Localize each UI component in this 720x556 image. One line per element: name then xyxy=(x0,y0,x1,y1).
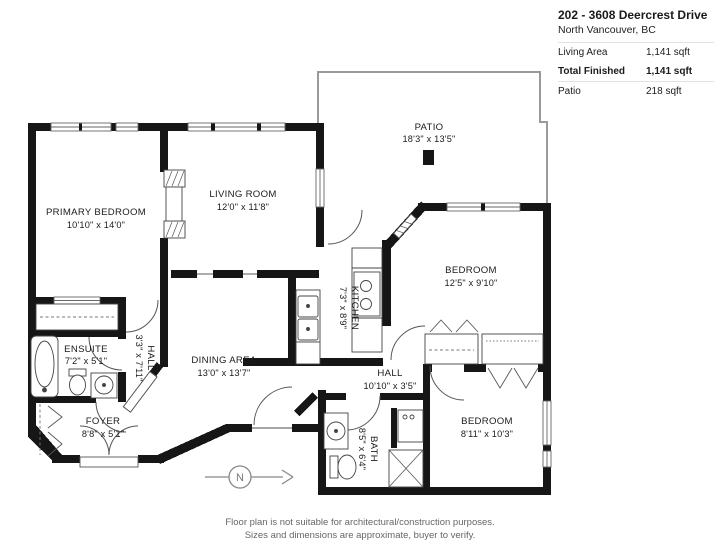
room-dims-hall-main: 10'10" x 3'5" xyxy=(364,381,417,391)
openings xyxy=(197,274,292,428)
stove-burner xyxy=(361,281,372,292)
patio-column xyxy=(423,150,434,165)
compass-north-label: N xyxy=(236,472,244,484)
dining-door-arc xyxy=(254,387,292,425)
disclaimer-line-1: Floor plan is not suitable for architect… xyxy=(0,516,720,529)
room-dims-bedroom-bottom: 8'11" x 10'3" xyxy=(461,429,513,439)
room-label-hall-small: HALL xyxy=(145,345,156,371)
stat-label: Patio xyxy=(558,86,646,98)
room-label-primary-bedroom: PRIMARY BEDROOM xyxy=(46,207,146,218)
room-label-bedroom-right: BEDROOM xyxy=(445,265,497,276)
floorplan-page: 202 - 3608 Deercrest Drive North Vancouv… xyxy=(0,0,720,556)
room-dims-ensuite: 7'2" x 5'1" xyxy=(65,356,107,366)
patio-door-arc xyxy=(328,210,362,244)
room-label-living-room: LIVING ROOM xyxy=(209,189,276,200)
room-dims-bedroom-right: 12'5" x 9'10" xyxy=(445,278,498,288)
bath-door-arc xyxy=(346,396,380,430)
listing-city: North Vancouver, BC xyxy=(558,23,714,37)
room-label-bedroom-bottom: BEDROOM xyxy=(461,416,513,427)
primary-bedroom-door-arc xyxy=(126,300,158,332)
room-label-bath: BATH xyxy=(368,436,379,462)
toilet-tank xyxy=(330,456,338,478)
room-dims-patio: 18'3" x 13'5" xyxy=(403,134,456,144)
room-dims-hall-small: 3'3" x 7'11" xyxy=(134,335,144,382)
fireplace xyxy=(164,170,185,238)
listing-header: 202 - 3608 Deercrest Drive North Vancouv… xyxy=(558,8,714,101)
stat-value: 1,141 sqft xyxy=(646,66,692,78)
toilet xyxy=(70,375,86,395)
kitchen-cabinet xyxy=(296,342,320,364)
room-label-hall-main: HALL xyxy=(377,368,403,379)
room-dims-primary-bedroom: 10'10" x 14'0" xyxy=(67,220,125,230)
room-dims-bath: 8'5" x 6'4" xyxy=(357,428,367,470)
room-label-kitchen: KITCHEN xyxy=(349,286,360,330)
stat-living-area: Living Area 1,141 sqft xyxy=(558,42,714,62)
stat-label: Living Area xyxy=(558,47,646,59)
stove-burner xyxy=(361,299,372,310)
bedroom-bottom-door-arc xyxy=(430,366,464,400)
room-dims-foyer: 8'8" x 5'1" xyxy=(82,429,124,439)
stat-value: 1,141 sqft xyxy=(646,47,690,59)
stat-label: Total Finished xyxy=(558,66,646,78)
room-labels: PATIO 18'3" x 13'5" PRIMARY BEDROOM 10'1… xyxy=(46,122,513,470)
bedroom-right-door-arc xyxy=(391,326,425,360)
listing-address: 202 - 3608 Deercrest Drive xyxy=(558,8,714,23)
toilet xyxy=(338,455,356,479)
room-label-foyer: FOYER xyxy=(86,416,121,427)
room-dims-kitchen: 7'3" x 8'9" xyxy=(338,287,348,329)
stat-patio: Patio 218 sqft xyxy=(558,81,714,101)
room-label-dining-area: DINING AREA xyxy=(191,355,256,366)
disclaimer-line-2: Sizes and dimensions are approximate, bu… xyxy=(0,529,720,542)
room-label-patio: PATIO xyxy=(415,122,444,133)
angled-window xyxy=(394,214,417,238)
washer xyxy=(398,410,423,442)
room-label-ensuite: ENSUITE xyxy=(64,344,108,355)
room-dims-living-room: 12'0" x 11'8" xyxy=(217,202,269,212)
stat-value: 218 sqft xyxy=(646,86,682,98)
disclaimer: Floor plan is not suitable for architect… xyxy=(0,516,720,542)
stat-total-finished: Total Finished 1,141 sqft xyxy=(558,62,714,81)
compass: N xyxy=(205,466,293,488)
room-dims-dining-area: 13'0" x 13'7" xyxy=(198,368,251,378)
